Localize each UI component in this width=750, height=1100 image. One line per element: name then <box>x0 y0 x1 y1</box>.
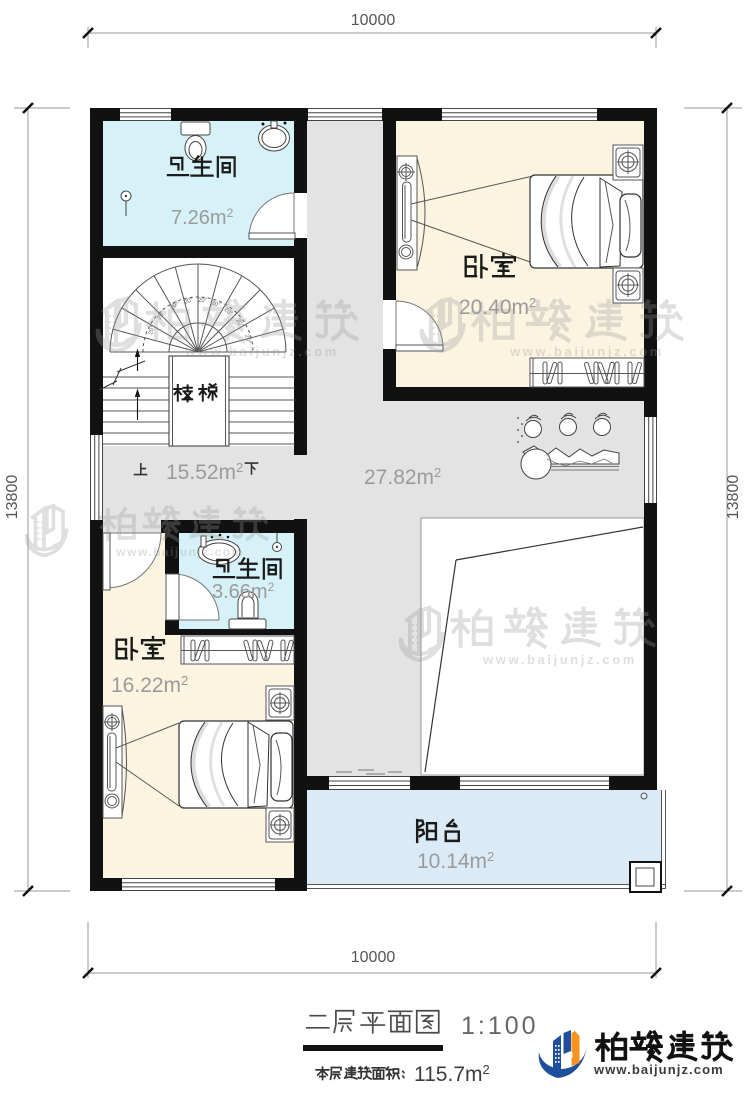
svg-text:16.22m2: 16.22m2 <box>111 673 188 697</box>
svg-text:1:100: 1:100 <box>461 1012 539 1040</box>
svg-text:15.52m2: 15.52m2 <box>166 460 243 484</box>
svg-text:27.82m2: 27.82m2 <box>364 465 441 489</box>
svg-text:www.baijunjz.com: www.baijunjz.com <box>115 545 244 559</box>
svg-text:www.baijunjz.com: www.baijunjz.com <box>593 1062 724 1077</box>
svg-text:www.baijunjz.com: www.baijunjz.com <box>184 344 339 359</box>
svg-text:13800: 13800 <box>4 475 21 520</box>
svg-text:3.66m2: 3.66m2 <box>212 580 275 603</box>
svg-text:115.7m2: 115.7m2 <box>414 1062 490 1086</box>
svg-text:www.baijunjz.com: www.baijunjz.com <box>509 344 664 359</box>
svg-text:13800: 13800 <box>725 475 742 520</box>
svg-text:10.14m2: 10.14m2 <box>417 849 494 873</box>
svg-text:10000: 10000 <box>351 949 396 966</box>
svg-text:www.baijunjz.com: www.baijunjz.com <box>482 652 637 667</box>
svg-text:10000: 10000 <box>351 12 396 29</box>
svg-text:7.26m2: 7.26m2 <box>171 206 234 229</box>
svg-text:20°: 20° <box>198 298 208 304</box>
